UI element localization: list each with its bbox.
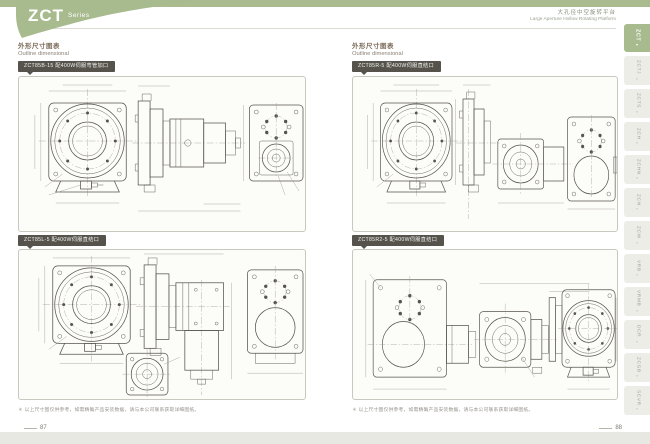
outline-drawing-zct85r bbox=[353, 77, 617, 231]
chevron-icon: » bbox=[636, 374, 638, 378]
tab-series-zctj[interactable]: ZCTJ» bbox=[624, 56, 650, 85]
mount-view bbox=[243, 103, 303, 195]
tab-series-zcgb[interactable]: ZCGB» bbox=[624, 353, 650, 382]
tab-label: ZCTJ bbox=[635, 60, 640, 74]
product-title-en: Large Aperture Hollow Rotating Platform bbox=[530, 17, 616, 23]
chevron-icon: » bbox=[636, 110, 638, 114]
series-title: ZCT bbox=[28, 6, 64, 25]
tab-series-zch[interactable]: ZCH» bbox=[624, 122, 650, 151]
header-product-title: 大孔径中空旋转平台 Large Aperture Hollow Rotating… bbox=[530, 10, 616, 24]
panel-label: ZCT85R-5 配400W伺服直结口 bbox=[352, 61, 441, 72]
tab-series-zcw[interactable]: ZCW» bbox=[624, 221, 650, 250]
mount-view bbox=[247, 266, 303, 373]
chevron-icon: » bbox=[636, 241, 638, 245]
page-number-rule bbox=[24, 428, 37, 429]
page-number-rule bbox=[599, 428, 612, 429]
chevron-icon: » bbox=[636, 176, 638, 180]
tab-series-zcts[interactable]: ZCTS» bbox=[624, 89, 650, 118]
chevron-icon: » bbox=[636, 207, 638, 211]
footnote: ＊ 以上尺寸图仅供参考，如需精确产品安装数据，请与本公司联系获取详细图纸。 bbox=[352, 406, 618, 413]
bottom-edge-strip bbox=[0, 432, 650, 444]
page-number-value: 88 bbox=[615, 425, 622, 431]
tab-label: ZCH bbox=[635, 128, 640, 140]
tab-series-vrb[interactable]: VRB» bbox=[624, 254, 650, 283]
bottom-flange-view bbox=[122, 349, 180, 397]
tab-label: ZCN bbox=[635, 194, 640, 206]
chevron-icon: » bbox=[636, 273, 638, 277]
tab-series-zchn[interactable]: ZCHN» bbox=[624, 155, 650, 184]
gearbox-flange-view bbox=[474, 284, 590, 377]
panel-label-text: ZCT85B-15 配400W伺服弯管加口 bbox=[24, 63, 108, 69]
section-title-en: Outline dimensional bbox=[352, 51, 618, 57]
mount-plate-view bbox=[366, 274, 476, 389]
gearbox-flange-view bbox=[492, 133, 573, 203]
drawing-panel bbox=[352, 76, 618, 232]
page-number-value: 87 bbox=[40, 425, 47, 431]
tab-label: ZCHN bbox=[635, 159, 640, 175]
panel-label: ZCT85R2-5 配400W伺服直结口 bbox=[352, 235, 444, 246]
tab-label: DCR bbox=[635, 325, 640, 337]
front-view bbox=[368, 85, 462, 203]
tab-label: ZCGB bbox=[635, 357, 640, 373]
tab-series-scvr[interactable]: SCVR» bbox=[624, 386, 650, 415]
tab-label: VRMB bbox=[635, 290, 640, 306]
tab-label: SCVR bbox=[635, 390, 640, 406]
front-view bbox=[39, 256, 140, 363]
chevron-icon: » bbox=[636, 77, 638, 81]
page-right: 外形尺寸图表 Outline dimensional ZCT85R-5 配400… bbox=[352, 40, 618, 432]
footnote: ＊ 以上尺寸图仅供参考，如需精确产品安装数据，请与本公司联系获取详细图纸。 bbox=[18, 406, 306, 413]
chevron-icon: » bbox=[636, 141, 638, 145]
series-tab-sidebar: ZCT ▾ ZCTJ» ZCTS» ZCH» ZCHN» ZCN» ZCW» V… bbox=[624, 24, 650, 419]
chevron-down-icon: ▾ bbox=[636, 43, 638, 47]
panel-label: ZCT85B-15 配400W伺服弯管加口 bbox=[18, 61, 115, 72]
outline-drawing-zct85r2 bbox=[353, 250, 617, 399]
front-view bbox=[35, 85, 136, 203]
tab-label: ZCT bbox=[634, 29, 639, 41]
side-view-motor-down bbox=[136, 254, 231, 395]
tab-series-dcr[interactable]: DCR» bbox=[624, 320, 650, 349]
chevron-icon: » bbox=[636, 340, 638, 344]
panel-label-text: ZCT85R2-5 配400W伺服直结口 bbox=[358, 237, 437, 243]
panel-label-text: ZCT85R-5 配400W伺服直结口 bbox=[358, 63, 434, 69]
drawing-panel bbox=[18, 249, 306, 400]
panel-label-text: ZCT85L-5 配400W伺服直结口 bbox=[24, 237, 99, 243]
side-view bbox=[456, 85, 500, 219]
tab-zct-active[interactable]: ZCT ▾ bbox=[624, 24, 650, 52]
page-number-left: 87 bbox=[24, 425, 47, 431]
drawing-panel bbox=[352, 249, 618, 400]
tab-series-zcn[interactable]: ZCN» bbox=[624, 188, 650, 217]
page-left: 外形尺寸图表 Outline dimensional ZCT85B-15 配40… bbox=[18, 40, 306, 432]
series-subtitle: Series bbox=[68, 12, 89, 19]
chevron-icon: » bbox=[636, 309, 638, 313]
chevron-icon: » bbox=[636, 407, 638, 411]
mount-plate-view bbox=[568, 115, 618, 209]
outline-drawing-zct85b bbox=[19, 77, 305, 231]
brand: ZCTSeries bbox=[28, 6, 89, 26]
page-number-right: 88 bbox=[599, 425, 622, 431]
drawing-panel bbox=[18, 76, 306, 232]
front-view bbox=[549, 284, 617, 389]
tab-series-vrmb[interactable]: VRMB» bbox=[624, 287, 650, 316]
section-title-en: Outline dimensional bbox=[18, 51, 306, 57]
panel-label: ZCT85L-5 配400W伺服直结口 bbox=[18, 235, 106, 246]
tab-label: VRB bbox=[635, 260, 640, 272]
outline-drawing-zct85l bbox=[19, 250, 305, 399]
tab-label: ZCTS bbox=[635, 93, 640, 108]
section-title-zh: 外形尺寸图表 bbox=[352, 40, 618, 50]
side-view bbox=[132, 86, 245, 211]
tab-label: ZCW bbox=[635, 226, 640, 239]
